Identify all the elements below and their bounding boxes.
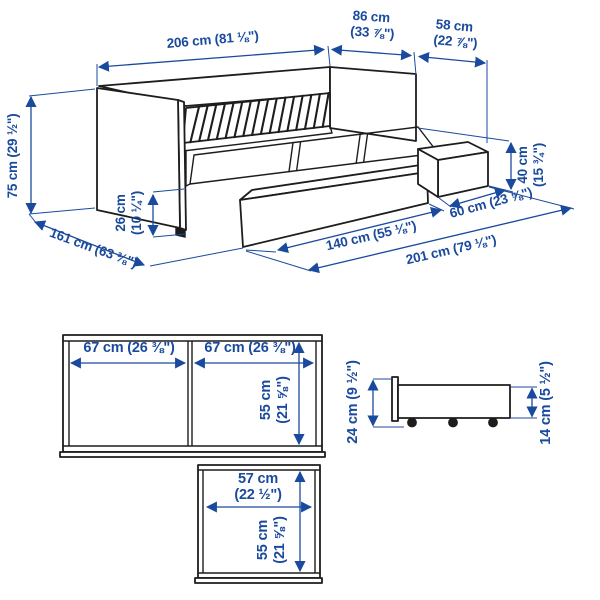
front-view-label-height-1: 55 cm bbox=[258, 380, 274, 420]
side-view-body bbox=[398, 385, 510, 418]
dim-label-drawer-height-2: (15 ¾") bbox=[531, 143, 546, 187]
front-view-drawing: 67 cm (26 ⅜") 67 cm (26 ⅜") 55 cm (21 ⅝"… bbox=[60, 335, 325, 457]
dimension-diagram: 206 cm (81 ⅛") 86 cm (33 ⅞") 58 cm (22 ⅞… bbox=[0, 0, 600, 600]
dim-label-length: 206 cm (81 ⅛") bbox=[166, 28, 259, 51]
compartment-dividers bbox=[289, 133, 368, 171]
caster-icon bbox=[408, 418, 416, 426]
side-view-label-total: 24 cm (9 ½") bbox=[345, 360, 361, 444]
caster-icon bbox=[489, 418, 497, 426]
top-view-label-width-1: 57 cm bbox=[238, 471, 278, 487]
front-view-label-height-2: (21 ⅝") bbox=[275, 376, 291, 424]
dim-label-clearance-1: 26 cm bbox=[113, 194, 128, 231]
top-view-drawing: 57 cm (22 ½") 55 cm (21 ⅝") bbox=[195, 465, 322, 583]
front-view-label-right: 67 cm (26 ⅜") bbox=[204, 340, 296, 356]
right-end-panel bbox=[330, 67, 416, 141]
top-view-label-width-2: (22 ½") bbox=[234, 487, 282, 503]
top-view-plinth bbox=[195, 578, 322, 583]
dim-label-pullout-2: (22 ⅞") bbox=[433, 32, 478, 51]
top-view-label-height-1: 55 cm bbox=[255, 520, 271, 560]
dim-label-drawer-height-1: 40 cm bbox=[515, 146, 530, 183]
dim-line-58 bbox=[419, 57, 485, 64]
front-view-label-left: 67 cm (26 ⅜") bbox=[83, 340, 175, 356]
caster-icon bbox=[449, 418, 457, 426]
dim-label-depth-2: (33 ⅞") bbox=[350, 23, 395, 41]
dim-line-86 bbox=[332, 50, 411, 56]
dim-label-clearance-2: (10 ¼") bbox=[129, 191, 144, 235]
side-drawer bbox=[418, 142, 488, 197]
dim-label-height: 75 cm (29 ½") bbox=[5, 114, 20, 199]
front-view-plinth bbox=[60, 452, 325, 457]
left-panel-foot bbox=[176, 228, 185, 237]
side-view-drawing: 24 cm (9 ½") 14 cm (5 ½") bbox=[345, 360, 554, 445]
dim-label-base-length: 201 cm (79 ⅛") bbox=[404, 232, 497, 267]
storage-frame-left-wall bbox=[186, 151, 190, 186]
side-drawer-face bbox=[438, 152, 488, 197]
side-view-label-box: 14 cm (5 ½") bbox=[538, 361, 554, 445]
dim-label-depth-1: 86 cm bbox=[352, 8, 390, 26]
diagram-canvas: 206 cm (81 ⅛") 86 cm (33 ⅞") 58 cm (22 ⅞… bbox=[0, 0, 600, 600]
dim-line-206 bbox=[99, 50, 324, 68]
top-view-label-height-2: (21 ⅝") bbox=[272, 516, 288, 564]
daybed-3d-drawing bbox=[97, 67, 488, 247]
